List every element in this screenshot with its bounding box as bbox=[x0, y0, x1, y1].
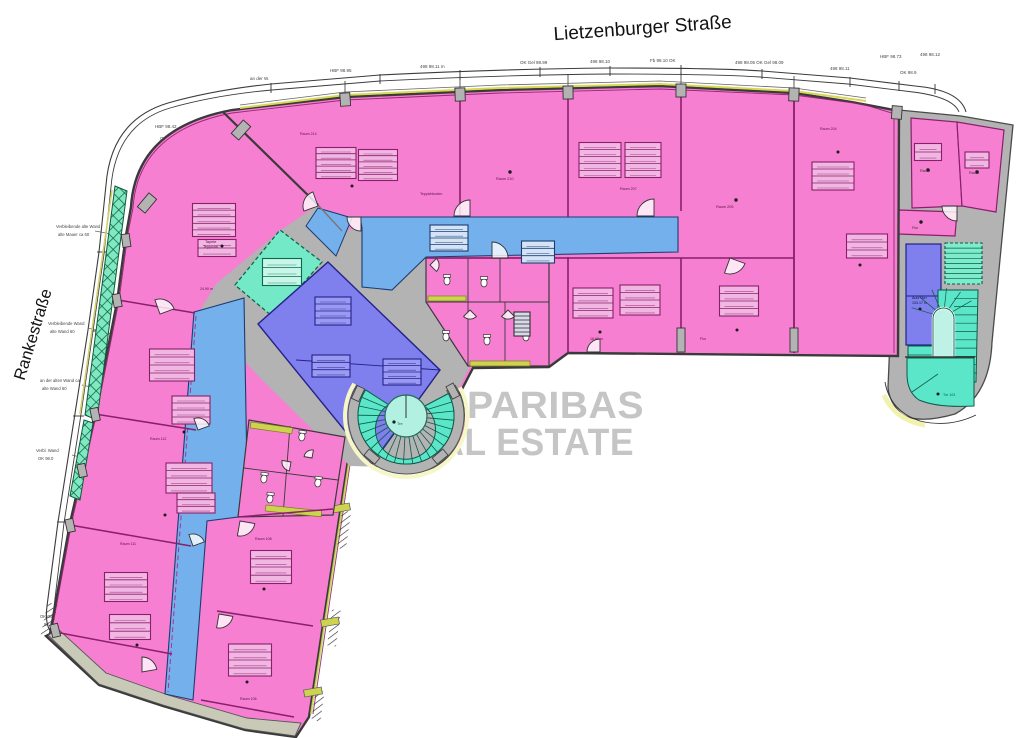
svg-text:Verbl. Wand: Verbl. Wand bbox=[36, 448, 59, 453]
svg-text:Raum 210: Raum 210 bbox=[496, 177, 514, 181]
svg-text:Tre: Tre bbox=[397, 422, 403, 426]
svg-text:HBF 98.95: HBF 98.95 bbox=[330, 68, 352, 73]
svg-text:Tre 103: Tre 103 bbox=[943, 393, 955, 397]
svg-text:Teppichb: Teppichb bbox=[203, 245, 218, 249]
svg-text:24.90 m: 24.90 m bbox=[200, 287, 213, 291]
svg-text:Raum: Raum bbox=[969, 171, 979, 175]
svg-text:Raum: Raum bbox=[920, 169, 930, 173]
svg-text:alte Wand 60: alte Wand 60 bbox=[50, 329, 75, 334]
svg-text:16.60 m: 16.60 m bbox=[590, 337, 603, 341]
svg-text:Raum 106: Raum 106 bbox=[240, 697, 257, 701]
svg-text:Raum 108: Raum 108 bbox=[255, 537, 272, 541]
svg-text:498 98.05 OK Gel 98.09: 498 98.05 OK Gel 98.09 bbox=[735, 60, 784, 65]
svg-text:498 98.11: 498 98.11 bbox=[830, 66, 850, 71]
svg-text:alte Mauer ca 60: alte Mauer ca 60 bbox=[58, 232, 90, 237]
svg-text:Raum 205: Raum 205 bbox=[716, 205, 734, 209]
svg-text:HBF 98.42: HBF 98.42 bbox=[155, 124, 177, 129]
svg-text:498 98.10: 498 98.10 bbox=[590, 59, 611, 64]
svg-text:Tapete: Tapete bbox=[205, 240, 216, 244]
svg-text:498 98.12: 498 98.12 bbox=[920, 52, 941, 57]
svg-text:Raum 111: Raum 111 bbox=[120, 542, 136, 546]
svg-text:Raum 204: Raum 204 bbox=[820, 127, 837, 131]
svg-text:HBF 98.73: HBF 98.73 bbox=[880, 54, 902, 59]
svg-text:Teppichboden: Teppichboden bbox=[420, 192, 442, 196]
svg-text:Flur: Flur bbox=[700, 337, 707, 341]
svg-text:OK Gel 98.99: OK Gel 98.99 bbox=[520, 60, 548, 65]
svg-text:Flur: Flur bbox=[912, 226, 919, 230]
svg-text:OK 98.9: OK 98.9 bbox=[900, 70, 917, 75]
svg-text:498 98.11 m: 498 98.11 m bbox=[420, 64, 445, 69]
svg-text:Verbleibende alte Wand: Verbleibende alte Wand bbox=[56, 224, 101, 229]
svg-text:OK 98.0: OK 98.0 bbox=[38, 456, 54, 461]
svg-text:Raum 112: Raum 112 bbox=[150, 437, 166, 441]
svg-text:Verbleibende Wand: Verbleibende Wand bbox=[48, 321, 85, 326]
svg-text:Fb 98.10 OK: Fb 98.10 OK bbox=[650, 58, 676, 63]
svg-text:an der W.: an der W. bbox=[250, 76, 269, 81]
svg-text:Raum 207: Raum 207 bbox=[620, 187, 637, 191]
svg-text:103.17 m: 103.17 m bbox=[912, 301, 927, 305]
svg-text:Raum 214: Raum 214 bbox=[300, 132, 317, 136]
svg-text:an der alten Wand ca: an der alten Wand ca bbox=[40, 378, 80, 383]
svg-text:alte Wand 60: alte Wand 60 bbox=[42, 386, 67, 391]
